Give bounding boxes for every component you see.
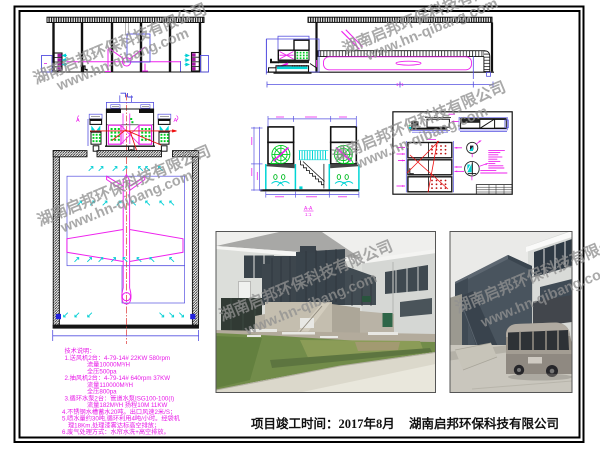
svg-text:A: A xyxy=(174,118,178,124)
svg-text:全压800pa: 全压800pa xyxy=(87,388,117,396)
svg-text:5.喷水量约30吨,循环利用4吨/小时。经袋机: 5.喷水量约30吨,循环利用4吨/小时。经袋机 xyxy=(62,415,181,423)
svg-text:171: 171 xyxy=(396,82,404,87)
svg-text:湖南启邦环保科技有限公司: 湖南启邦环保科技有限公司 xyxy=(409,416,559,431)
svg-text:技术说明：: 技术说明： xyxy=(65,347,96,355)
svg-text:2.抽风机2台：4-79-14# 640rpm 37KW: 2.抽风机2台：4-79-14# 640rpm 37KW xyxy=(65,374,171,382)
svg-text:1:1: 1:1 xyxy=(305,212,312,217)
svg-text:项目竣工时间：2017年8月: 项目竣工时间：2017年8月 xyxy=(251,416,395,431)
svg-text:流量10000M³/H: 流量10000M³/H xyxy=(87,361,130,369)
svg-text:流量182M³/H 扬程10M 11KW: 流量182M³/H 扬程10M 11KW xyxy=(87,401,167,409)
svg-text:6.废气处理方式：水帘水洗+高空排放。: 6.废气处理方式：水帘水洗+高空排放。 xyxy=(62,428,170,436)
